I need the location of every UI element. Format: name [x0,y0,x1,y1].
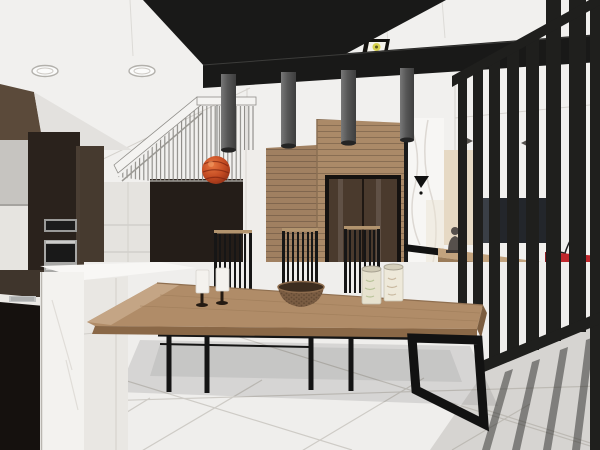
wood-paneled-doors [325,175,401,275]
upper-cabinet-gray [0,140,28,206]
screen-bar [473,66,483,308]
screen-bar [546,0,561,341]
pendant-cylinder [281,72,296,149]
pendant-cylinder [221,74,236,153]
screen-corner-post [590,0,600,450]
kitchen-back-wall [0,206,28,270]
screen-bar [569,0,586,332]
sphere-pendant-lamp [202,156,230,184]
render-viewport [0,0,600,450]
pendant-cylinder [341,70,356,146]
screen-bar [489,58,500,364]
screen-bar [526,39,539,350]
screen-bar [507,49,519,357]
under-counter-dark [0,302,44,450]
screen-bar [458,74,467,306]
pendant-cylinder [400,68,414,143]
